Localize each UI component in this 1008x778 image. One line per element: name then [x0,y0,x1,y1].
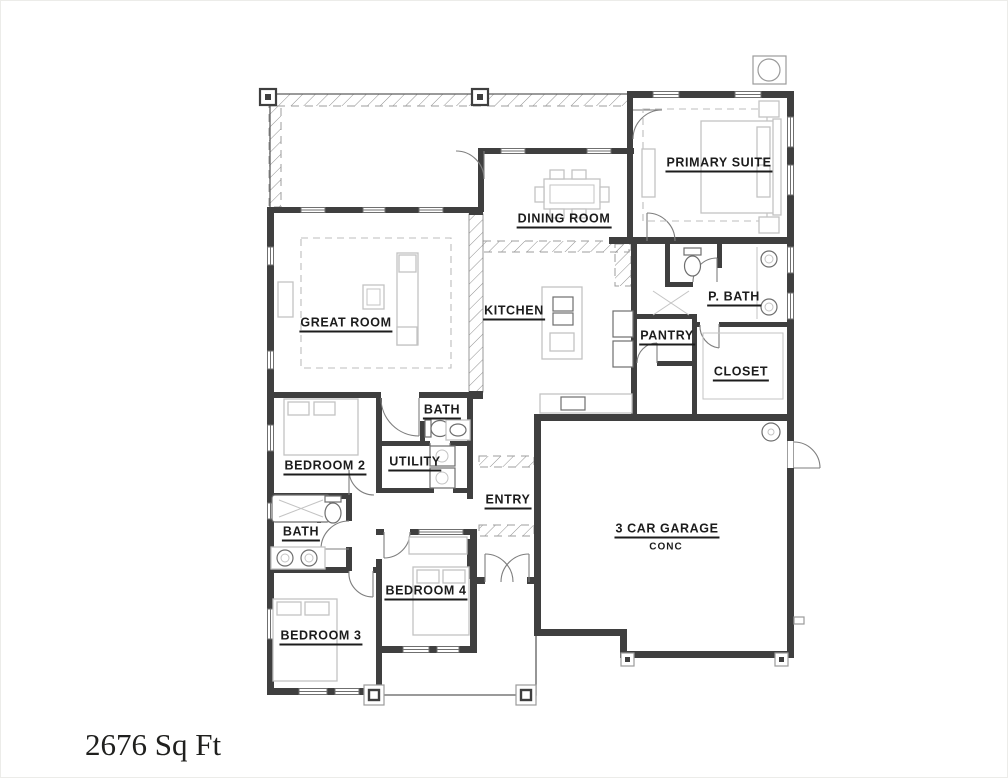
room-label-great-room: GREAT ROOM [299,316,392,333]
room-label-garage: 3 CAR GARAGE [614,522,719,539]
room-label-entry: ENTRY [485,493,532,510]
room-label-bath-left: BATH [282,525,320,542]
room-label-kitchen: KITCHEN [483,304,545,321]
floor-plan-drawing [1,1,1008,778]
room-label-pantry: PANTRY [639,329,695,346]
garage-floor-note: CONC [649,542,682,553]
floor-plan-page: PRIMARY SUITE DINING ROOM GREAT ROOM KIT… [0,0,1008,778]
area-label: 2676 Sq Ft [85,727,221,763]
room-label-utility: UTILITY [388,455,441,472]
hall-bath-fixtures [425,420,470,440]
room-label-closet: CLOSET [713,365,769,382]
kitchen-island [540,287,633,413]
room-label-bedroom-2: BEDROOM 2 [283,459,366,476]
primary-wc-toilet [684,248,701,276]
ac-unit [753,56,786,84]
room-label-bath-hall: BATH [423,403,461,420]
bedroom2-bed [284,399,358,455]
room-label-dining-room: DINING ROOM [517,212,612,229]
room-label-bedroom-4: BEDROOM 4 [384,584,467,601]
water-heater [762,423,780,441]
room-label-bedroom-3: BEDROOM 3 [279,629,362,646]
room-label-p-bath: P. BATH [707,290,761,307]
primary-bath-sinks [757,247,777,319]
kitchen-divider-strip [469,207,483,399]
room-label-primary-suite: PRIMARY SUITE [665,156,772,173]
furniture [273,101,781,681]
